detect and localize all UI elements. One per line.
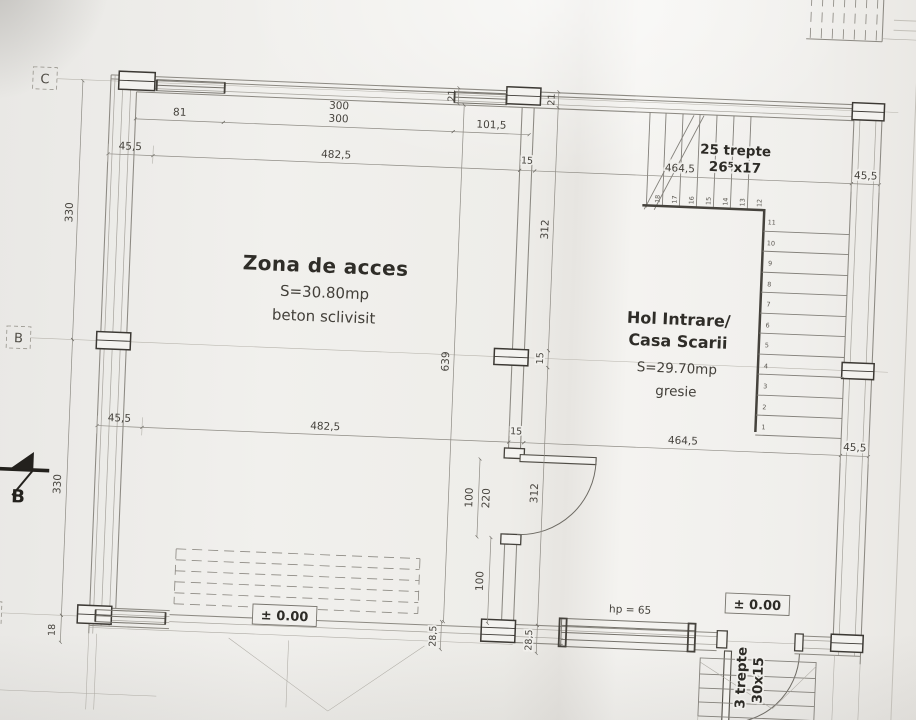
dim-312-upper: 312 [539, 219, 552, 240]
stair-tread-number: 11 [768, 218, 776, 226]
exterior-stair-label-line2: 30x15 [749, 657, 767, 704]
room-area-hol: S=29.70mp [636, 359, 717, 378]
labels: Zona de acces S=30.80mp beton sclivisit … [226, 123, 808, 710]
exterior-stair-label-line1: 3 trepte [732, 647, 750, 709]
dim-15-mid: 15 [535, 352, 546, 365]
room-finish-zona: beton sclivisit [272, 306, 376, 328]
stair-tread-number: 8 [767, 280, 771, 288]
stair-tread-number: 14 [721, 197, 729, 205]
dim-330-upper: 330 [63, 202, 76, 223]
dim-45-5-top-right: 45,5 [854, 170, 878, 183]
stair-tread-number: 9 [768, 259, 772, 267]
stair-size-label: 26⁵x17 [709, 159, 762, 177]
stair-count-label: 25 trepte [700, 142, 772, 161]
stair-tread-number: 2 [762, 403, 766, 411]
column-marker [506, 87, 541, 105]
dim-28-5-left: 28,5 [427, 625, 439, 647]
interior-door [501, 448, 597, 548]
grid-label-c: C [40, 72, 50, 87]
stair-tread-number: 12 [755, 199, 763, 207]
dim-15-bot: 15 [510, 426, 523, 437]
room-label-zona: Zona de acces [242, 250, 409, 281]
room-finish-hol: gresie [655, 383, 697, 401]
wall-pier [481, 619, 516, 642]
column-marker [119, 71, 156, 90]
column-marker [852, 103, 885, 121]
dim-300-a: 300 [329, 100, 350, 113]
stair-tread-number: 16 [687, 196, 695, 204]
level-entry: ± 0.00 [725, 593, 790, 616]
windows [95, 78, 717, 652]
dim-door-100: 100 [463, 487, 476, 508]
room-label-hol-line1: Hol Intrare/ [627, 308, 732, 331]
stair-tread-number: 1 [761, 423, 765, 431]
porch [170, 549, 428, 715]
level-porch-value: ± 0.00 [261, 608, 309, 625]
stair-tread-number: 6 [765, 321, 769, 329]
floor-plan-photo: C B A [0, 0, 916, 720]
dim-482-5-top: 482,5 [321, 148, 352, 161]
overhead-hatch [806, 0, 916, 43]
dim-15-top: 15 [521, 155, 534, 166]
stair-tread-number: 3 [763, 382, 767, 390]
dim-300-b: 300 [328, 113, 349, 126]
dim-45-5-bot-right: 45,5 [843, 442, 867, 455]
dim-464-5-top: 464,5 [665, 162, 696, 175]
dim-464-5-bot: 464,5 [668, 434, 699, 447]
dim-21-a: 21 [446, 89, 457, 102]
room-label-hol-line2: Casa Scarii [628, 330, 728, 353]
dim-18: 18 [47, 624, 58, 637]
stair-tread-number: 5 [765, 341, 769, 349]
stair-tread-number: 18 [653, 195, 661, 203]
level-entry-value: ± 0.00 [733, 597, 781, 614]
column-marker [831, 634, 864, 652]
dim-21-b: 21 [546, 93, 557, 106]
dim-45-5-bot-left: 45,5 [107, 412, 131, 425]
column-marker [842, 362, 875, 379]
section-mark: B [0, 450, 50, 508]
room-area-zona: S=30.80mp [280, 282, 370, 304]
dim-330-lower: 330 [51, 474, 64, 495]
dim-28-5-right: 28,5 [523, 629, 535, 651]
floor-plan-svg: C B A [0, 0, 916, 720]
dim-639: 639 [440, 351, 453, 372]
stair-tread-number: 13 [738, 198, 746, 206]
stair-tread-number: 15 [704, 197, 712, 205]
dim-482-5-bot: 482,5 [310, 420, 341, 433]
dim-100-wall: 100 [474, 571, 487, 592]
column-marker [494, 348, 529, 365]
section-label-b: B [11, 486, 26, 508]
grid-label-b: B [14, 331, 24, 346]
stair-tread-number: 17 [670, 195, 678, 203]
dim-door-220: 220 [480, 488, 493, 509]
dim-45-5-top-left: 45,5 [118, 140, 142, 153]
parapet-height-label: hp = 65 [609, 603, 652, 617]
level-porch: ± 0.00 [252, 604, 317, 627]
dim-81: 81 [173, 106, 187, 119]
column-marker [96, 331, 131, 349]
stair-tread-number: 4 [764, 362, 768, 370]
stair-tread-number: 7 [766, 300, 770, 308]
stair-tread-number: 10 [767, 239, 775, 247]
dim-101-5: 101,5 [476, 119, 507, 132]
dim-312-lower: 312 [528, 483, 541, 504]
